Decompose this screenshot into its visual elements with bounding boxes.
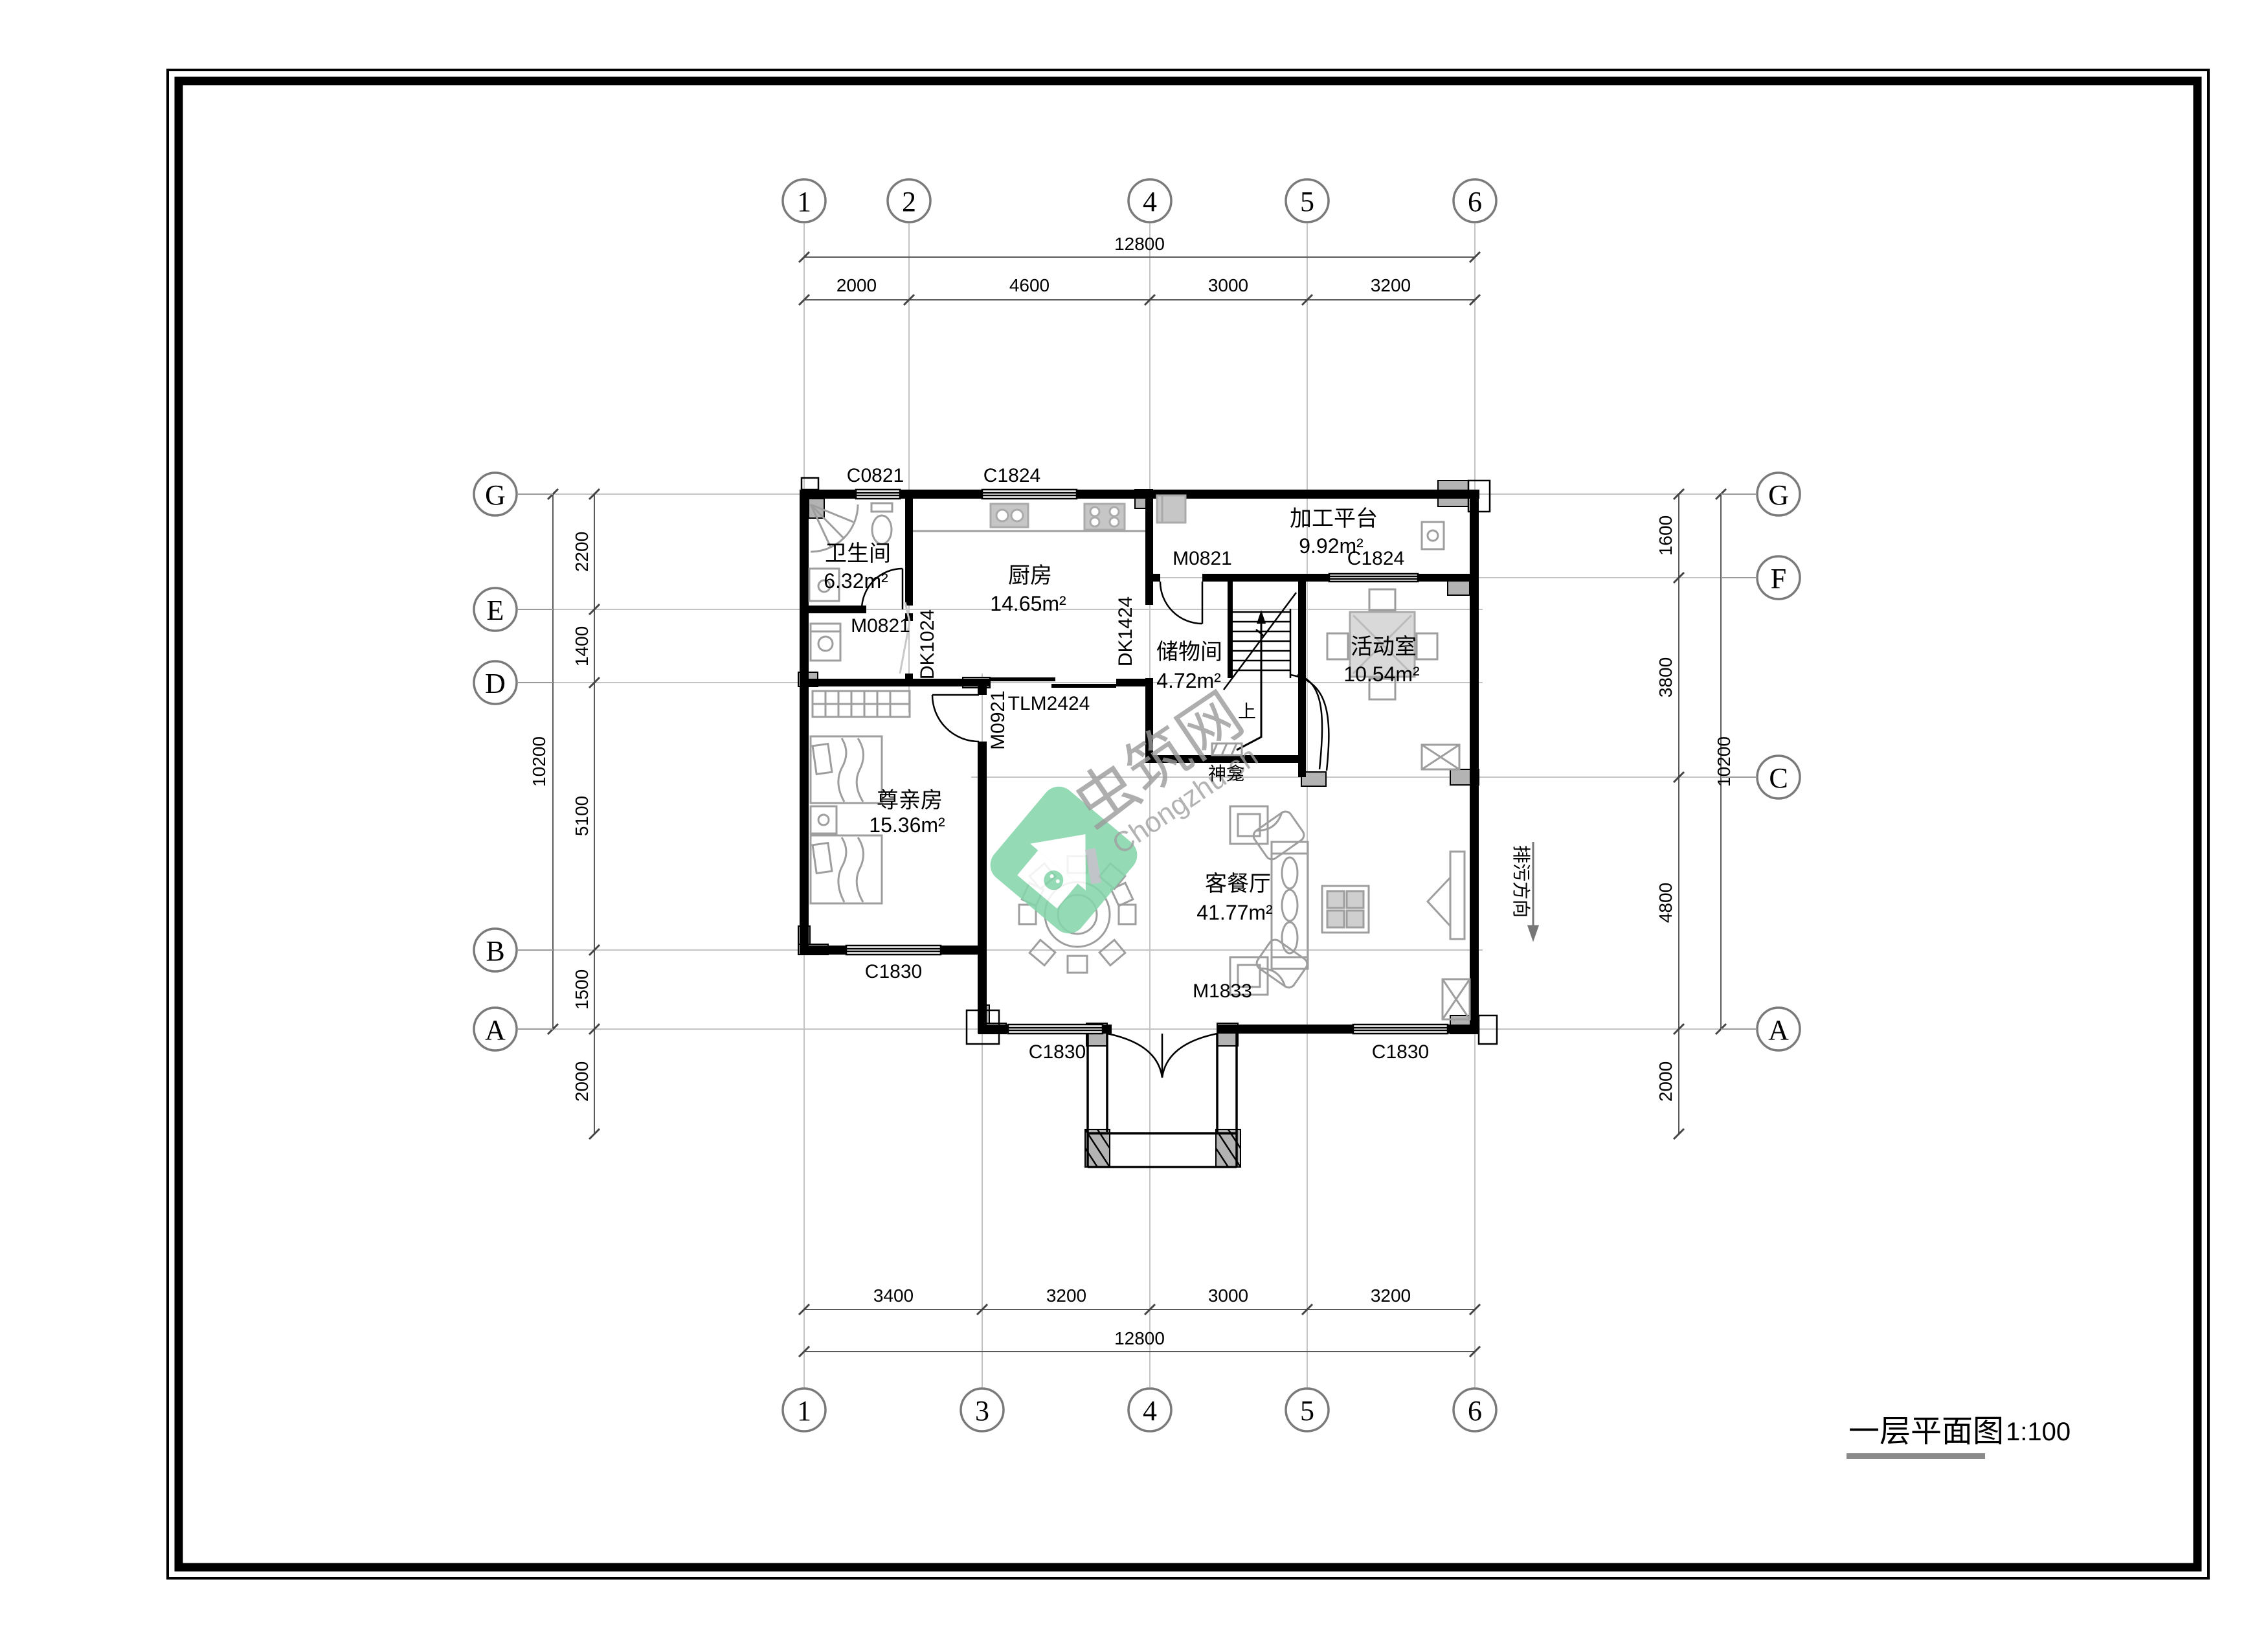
sewage-direction: 排污方向 xyxy=(1511,842,1538,939)
label-m0921: M0921 xyxy=(987,690,1009,750)
toilet-icon xyxy=(871,503,892,544)
room-bathroom-area: 6.32m² xyxy=(824,569,888,593)
dim-right-seg-3: 2000 xyxy=(1656,1061,1676,1102)
shrine-label: 神龛 xyxy=(1208,764,1244,784)
bubble-top-1: 1 xyxy=(797,186,811,218)
label-m0821-platform: M0821 xyxy=(1173,548,1232,569)
title-underline xyxy=(1847,1453,1985,1459)
bubble-right-C: C xyxy=(1769,762,1788,794)
room-kitchen-area: 14.65m² xyxy=(990,592,1066,615)
label-c1824-kitchen: C1824 xyxy=(983,465,1040,486)
stove-icon xyxy=(1084,504,1125,530)
vestibule-floor-hatch xyxy=(900,602,910,674)
window-c1830-entry-left xyxy=(1008,1025,1103,1034)
dim-bottom-seg-3: 3200 xyxy=(1371,1286,1411,1306)
door-m0921-bedroom xyxy=(932,695,979,742)
room-bedroom-area: 15.36m² xyxy=(869,813,945,837)
label-c1830-entry-right: C1830 xyxy=(1372,1041,1429,1063)
bubble-top-4: 4 xyxy=(1143,186,1157,218)
door-m0821-platform xyxy=(1160,582,1202,624)
dim-top-seg-1: 4600 xyxy=(1009,275,1050,295)
drawing-title: 一层平面图 xyxy=(1848,1414,2004,1449)
room-bathroom-name: 卫生间 xyxy=(825,541,891,566)
window-c1824-platform xyxy=(1329,574,1418,582)
bubble-left-A: A xyxy=(485,1014,506,1046)
bubble-top-5: 5 xyxy=(1300,186,1314,218)
platform-basin-icon xyxy=(1422,522,1444,549)
room-activity-name: 活动室 xyxy=(1351,635,1417,659)
dim-left-seg-2: 5100 xyxy=(572,796,592,836)
dim-top-seg-3: 3200 xyxy=(1371,275,1411,295)
kitchen-sink-icon xyxy=(991,504,1028,527)
stair-up-label: 上 xyxy=(1238,701,1256,721)
bubble-bottom-1: 1 xyxy=(797,1395,811,1427)
dim-top-seg-0: 2000 xyxy=(836,275,877,295)
room-living-area: 41.77m² xyxy=(1196,901,1273,924)
wardrobe-icon xyxy=(813,691,910,717)
label-c0821: C0821 xyxy=(847,465,904,486)
dim-left-total: 10200 xyxy=(529,736,549,787)
room-storage-name: 储物间 xyxy=(1156,640,1222,664)
label-c1830-bedroom: C1830 xyxy=(865,961,922,982)
label-c1830-entry-left: C1830 xyxy=(1029,1041,1086,1063)
washing-machine-icon xyxy=(811,624,840,661)
label-dk1424: DK1424 xyxy=(1115,596,1136,666)
window-c1830-entry-right xyxy=(1353,1025,1448,1034)
room-platform-name: 加工平台 xyxy=(1290,506,1378,531)
bubble-right-A: A xyxy=(1768,1014,1789,1046)
room-bedroom-name: 尊亲房 xyxy=(877,788,943,813)
bubble-bottom-4: 4 xyxy=(1143,1395,1157,1427)
dim-left-seg-4: 2000 xyxy=(572,1061,592,1102)
window-c1824-kitchen xyxy=(982,490,1077,499)
drawing-scale: 1:100 xyxy=(2006,1418,2071,1446)
bubble-top-2: 2 xyxy=(902,186,916,218)
label-m1833: M1833 xyxy=(1193,980,1252,1002)
dim-bottom-seg-0: 3400 xyxy=(873,1286,914,1306)
label-c1824-platform: C1824 xyxy=(1347,548,1404,569)
coffee-table-icon xyxy=(1322,886,1369,933)
room-living-name: 客餐厅 xyxy=(1205,872,1271,896)
label-dk1024: DK1024 xyxy=(917,609,938,679)
room-activity-area: 10.54m² xyxy=(1343,663,1420,686)
bubble-top-6: 6 xyxy=(1468,186,1482,218)
bubble-right-F: F xyxy=(1771,563,1786,595)
side-table-top xyxy=(1230,806,1268,844)
nightstand-icon xyxy=(811,806,836,833)
platform-appliance-icon xyxy=(1157,495,1185,523)
dim-bottom-total: 12800 xyxy=(1114,1328,1165,1348)
label-tlm2424: TLM2424 xyxy=(1008,693,1090,714)
dim-right-seg-2: 4800 xyxy=(1656,883,1676,923)
floor-plan-canvas: 12800 2000 4600 3000 3200 3400 3200 3000… xyxy=(0,0,2268,1643)
room-storage-area: 4.72m² xyxy=(1156,669,1221,692)
dim-left-seg-1: 1400 xyxy=(572,626,592,666)
label-m0821-bathroom: M0821 xyxy=(851,615,910,637)
bubble-left-D: D xyxy=(485,668,506,699)
bubble-left-B: B xyxy=(486,935,504,967)
dim-left-seg-3: 1500 xyxy=(572,969,592,1010)
sewage-direction-label: 排污方向 xyxy=(1511,845,1531,918)
bubble-right-G: G xyxy=(1768,479,1789,511)
bubble-bottom-5: 5 xyxy=(1300,1395,1314,1427)
dim-left-seg-0: 2200 xyxy=(572,532,592,572)
bubble-bottom-6: 6 xyxy=(1468,1395,1482,1427)
bubble-bottom-3: 3 xyxy=(975,1395,989,1427)
room-kitchen-name: 厨房 xyxy=(1008,563,1052,588)
dim-bottom-seg-1: 3200 xyxy=(1046,1286,1086,1306)
dim-bottom-seg-2: 3000 xyxy=(1208,1286,1248,1306)
title-block: 一层平面图 1:100 xyxy=(1847,1414,2071,1459)
door-m1833-entrance xyxy=(1107,1034,1217,1078)
window-c1830-bedroom xyxy=(846,946,941,955)
bed-1-icon xyxy=(811,736,882,803)
dim-right-seg-1: 3800 xyxy=(1656,657,1676,697)
window-c0821 xyxy=(856,490,900,499)
dim-right-seg-0: 1600 xyxy=(1656,516,1676,556)
dim-top-seg-2: 3000 xyxy=(1208,275,1248,295)
bubble-left-E: E xyxy=(487,595,504,626)
decor-box-right-bottom xyxy=(1443,979,1470,1019)
bubble-left-G: G xyxy=(485,479,506,511)
bed-2-icon xyxy=(811,835,882,903)
tv-cabinet-icon xyxy=(1428,852,1465,939)
dim-top-total: 12800 xyxy=(1114,234,1165,254)
dim-right-total: 10200 xyxy=(1714,736,1734,787)
decor-box-right-top xyxy=(1422,745,1459,769)
